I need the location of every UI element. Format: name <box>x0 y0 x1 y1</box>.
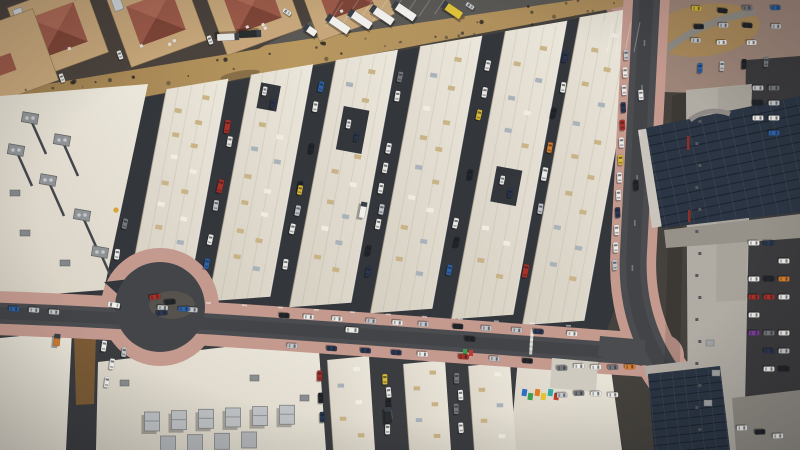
skylight <box>414 386 421 390</box>
car-windshield <box>756 241 758 244</box>
car-windshield <box>185 307 187 310</box>
dealer-lot-car <box>777 365 789 371</box>
ac-unit <box>704 400 712 406</box>
car-windshield <box>354 328 356 332</box>
car-windshield <box>723 9 725 12</box>
debris <box>340 52 342 54</box>
debris <box>82 86 84 88</box>
dealer-lot-car <box>762 365 774 371</box>
car-windshield <box>756 295 758 298</box>
plaza-car <box>741 21 753 28</box>
bottom-alley-car <box>457 390 464 402</box>
car-rear-window <box>368 319 370 322</box>
car-body <box>769 116 780 121</box>
bottom-alley-car <box>385 387 392 399</box>
car-windshield <box>700 25 702 28</box>
car-windshield <box>786 331 788 334</box>
car-body <box>638 90 644 101</box>
rooftop-unit <box>695 142 698 145</box>
car-windshield <box>573 332 575 336</box>
car-rear-window <box>592 392 594 395</box>
car-body <box>764 277 775 282</box>
bottom-left-roof <box>0 331 72 450</box>
car-windshield <box>748 6 750 9</box>
car-rear-window <box>459 430 463 432</box>
skylight <box>481 419 488 423</box>
car-windshield <box>459 325 461 329</box>
island-car-blue <box>177 305 190 312</box>
dealer-lot-car <box>767 114 779 120</box>
car-rear-window <box>558 366 560 369</box>
car-rear-window <box>609 366 611 369</box>
car-rear-window <box>622 109 625 111</box>
car-rear-window <box>30 308 32 311</box>
dealer-lot-car <box>777 293 789 299</box>
car-body <box>719 23 729 28</box>
car-body <box>574 364 585 369</box>
car-body <box>574 391 585 396</box>
car-windshield <box>386 426 389 428</box>
car-rear-window <box>770 101 772 104</box>
island-car <box>163 298 176 305</box>
debris <box>574 15 577 18</box>
car-rear-window <box>383 381 386 383</box>
car-rear-window <box>618 179 621 181</box>
aerial-scene <box>0 0 800 450</box>
car-rear-window <box>466 337 468 341</box>
roadside-car <box>325 344 337 351</box>
car-body <box>386 387 392 398</box>
car-body <box>613 242 619 253</box>
roadside-car <box>391 319 403 326</box>
island-car <box>155 309 168 316</box>
car-windshield <box>761 430 763 433</box>
rooftop-unit <box>695 186 698 189</box>
roof-vent <box>120 380 129 386</box>
driving-car <box>463 335 475 342</box>
car-windshield <box>720 63 723 65</box>
rooftop-unit <box>695 230 698 233</box>
rooftop-equipment <box>113 207 118 212</box>
junction-lot-car <box>555 391 567 398</box>
car-windshield <box>777 25 779 28</box>
tarp <box>521 389 527 397</box>
car-windshield <box>399 321 401 325</box>
car-body <box>164 299 175 305</box>
roadside-car <box>390 349 402 356</box>
car-rear-window <box>624 74 627 76</box>
roof-vent <box>10 190 20 196</box>
car-rear-window <box>289 344 291 347</box>
car-rear-window <box>744 6 746 9</box>
car-rear-window <box>626 365 628 368</box>
debris <box>461 15 465 19</box>
car-body <box>620 120 626 131</box>
debris <box>435 36 437 38</box>
car-rear-window <box>166 300 168 304</box>
dealer-lot-car <box>762 275 774 281</box>
ac-unit <box>706 340 714 346</box>
car-windshield <box>622 87 626 89</box>
car-body <box>453 324 464 330</box>
dark-trailer <box>237 28 262 38</box>
dealer-lot-car <box>753 428 765 435</box>
roadside-car <box>510 326 522 333</box>
rooftop-unit <box>698 296 701 299</box>
car-windshield <box>293 344 295 348</box>
car-body <box>533 329 544 335</box>
debris <box>108 78 112 82</box>
junction-lot-car <box>589 390 601 397</box>
car-body <box>458 354 469 360</box>
bottom-alley-car <box>457 422 464 434</box>
plaza-car <box>741 4 752 10</box>
car-windshield <box>786 295 788 298</box>
right-road-parked-car <box>617 155 624 167</box>
debris <box>51 87 54 90</box>
car-windshield <box>529 359 531 363</box>
bottom-alley-truck <box>382 407 392 426</box>
car-body <box>769 101 780 106</box>
car-body <box>771 24 781 29</box>
roof-vent <box>20 230 30 236</box>
debris <box>25 89 27 91</box>
car-windshield <box>454 406 457 408</box>
car-windshield <box>333 347 335 351</box>
car-windshield <box>194 308 196 312</box>
rooftop-unit <box>698 384 701 387</box>
car-rear-window <box>780 295 782 298</box>
car-body <box>317 370 322 381</box>
car-body <box>326 346 337 352</box>
car-windshield <box>171 300 173 304</box>
dealer-lot-car <box>747 329 759 335</box>
car-body <box>417 351 428 357</box>
debris <box>315 46 318 49</box>
roadside-car <box>278 311 290 318</box>
tarp <box>547 389 553 397</box>
car-windshield <box>742 61 745 63</box>
car-windshield <box>465 355 467 359</box>
car-body <box>764 295 775 300</box>
car-rear-window <box>634 187 637 189</box>
car-rear-window <box>770 86 772 89</box>
car-windshield <box>777 6 779 9</box>
car-body <box>742 5 752 10</box>
debris <box>399 41 401 43</box>
car-rear-window <box>575 365 577 368</box>
debris <box>166 81 170 85</box>
car-windshield <box>617 192 621 194</box>
car-windshield <box>372 319 374 323</box>
car-body <box>741 59 746 69</box>
car-body <box>465 336 476 342</box>
car-rear-window <box>592 366 594 369</box>
car-windshield <box>563 366 565 369</box>
car-windshield <box>771 367 773 370</box>
debris <box>324 57 328 61</box>
rooftop-unit <box>695 274 698 277</box>
debris <box>613 2 615 4</box>
car-rear-window <box>770 116 772 119</box>
car-rear-window <box>748 41 750 44</box>
car-body <box>303 314 314 320</box>
car-rear-window <box>754 86 756 89</box>
right-road-parked-car <box>621 67 628 79</box>
bottom-right-building <box>732 390 800 450</box>
car-rear-window <box>180 307 182 310</box>
skylight <box>434 434 441 438</box>
car-windshield <box>623 69 627 71</box>
car-body <box>623 50 629 61</box>
car-rear-window <box>10 307 12 310</box>
roadside-car <box>47 308 59 315</box>
car-body <box>773 433 784 438</box>
warehouse-strips-bottom <box>327 356 516 450</box>
car-body <box>763 57 768 67</box>
car-windshield <box>387 389 391 391</box>
car-windshield <box>540 330 542 334</box>
car-windshield <box>319 395 322 397</box>
car-rear-window <box>460 355 462 358</box>
curb-dash <box>422 316 427 318</box>
car-rear-window <box>765 367 767 370</box>
car-body <box>454 404 459 415</box>
skylight <box>354 367 361 371</box>
junction-lot-car <box>623 363 635 370</box>
car-rear-window <box>347 328 349 332</box>
red-awning <box>687 136 690 150</box>
car-rear-window <box>615 232 618 234</box>
curb-dash <box>350 311 355 313</box>
car-rear-window <box>454 325 456 328</box>
car-body <box>769 86 780 91</box>
car-body <box>489 356 500 362</box>
car-body <box>360 348 371 354</box>
junction-lot-car <box>606 391 618 398</box>
skylight <box>340 417 347 421</box>
car-windshield <box>634 182 638 184</box>
car-rear-window <box>362 349 364 352</box>
car-body <box>692 6 702 11</box>
dealer-lot-car <box>751 84 763 90</box>
car-windshield <box>779 434 781 437</box>
car-body <box>622 85 628 96</box>
right-road-parked-car <box>612 242 619 254</box>
car-rear-window <box>318 378 321 380</box>
car-windshield <box>756 313 758 316</box>
dealer-lot-car <box>771 432 783 439</box>
car-windshield <box>786 259 788 262</box>
dealer-lot-car <box>747 275 759 281</box>
car-rear-window <box>750 313 752 316</box>
car-body <box>458 390 464 401</box>
car-rear-window <box>770 131 772 134</box>
debris <box>552 15 556 19</box>
car-body <box>779 295 790 300</box>
car-windshield <box>459 424 463 426</box>
car-body <box>779 259 790 264</box>
car-rear-window <box>744 24 746 27</box>
right-road-parked-car <box>619 102 626 114</box>
hvac-fan <box>17 148 21 152</box>
truck-cab <box>256 30 261 37</box>
junction-lot-car <box>555 364 567 371</box>
warehouse-strip-bottom <box>327 356 375 450</box>
car-body <box>764 331 775 336</box>
dealer-lot-car <box>767 84 779 90</box>
car-rear-window <box>491 357 493 360</box>
hvac-fan <box>77 213 81 217</box>
car-rear-window <box>558 394 560 397</box>
right-road-parked-car <box>620 85 627 97</box>
car-windshield <box>771 349 773 352</box>
junction-lot-car <box>572 363 584 370</box>
car-windshield <box>621 104 625 106</box>
car-rear-window <box>319 400 322 402</box>
car-rear-window <box>513 328 515 331</box>
car-rear-window <box>609 393 611 396</box>
car-windshield <box>338 317 340 321</box>
hvac-fan <box>83 213 87 217</box>
dealer-lot-car <box>735 424 747 431</box>
car-windshield <box>367 349 369 353</box>
car-rear-window <box>764 64 767 66</box>
car-body <box>616 190 622 201</box>
dealer-lot-car <box>777 257 789 263</box>
car-rear-window <box>780 367 782 370</box>
car-body <box>749 331 760 336</box>
plaza-car <box>692 23 703 29</box>
tarp <box>469 350 473 356</box>
car-windshield <box>786 367 788 370</box>
dealer-lot-car <box>777 329 789 335</box>
rooftop-unit <box>698 340 701 343</box>
car-rear-window <box>614 249 617 251</box>
driving-van <box>344 326 359 334</box>
car-body <box>9 306 20 312</box>
curb-dash <box>206 302 211 304</box>
car-windshield <box>725 24 727 27</box>
roadside-car <box>480 324 492 331</box>
car-rear-window <box>765 349 767 352</box>
lane-dash <box>644 40 646 46</box>
car-body <box>779 277 790 282</box>
car-rear-window <box>387 394 391 396</box>
car-windshield <box>698 65 701 67</box>
car-windshield <box>614 393 616 396</box>
car-windshield <box>620 139 624 141</box>
debris <box>233 68 235 70</box>
roadside-car <box>365 317 377 324</box>
car-windshield <box>597 365 599 368</box>
dealer-lot-car <box>747 311 759 317</box>
hvac-fan <box>63 138 67 142</box>
car-body <box>612 260 618 271</box>
hvac-fan <box>49 178 53 182</box>
car-body <box>619 137 625 148</box>
dealer-lot-car <box>777 347 789 353</box>
debris <box>479 20 483 24</box>
car-rear-window <box>719 9 721 12</box>
dealer-lot-car <box>751 114 763 120</box>
junction-lot-car <box>589 363 601 370</box>
skylight <box>430 371 437 375</box>
plaza-car <box>745 39 756 45</box>
car-rear-window <box>575 392 577 395</box>
car-windshield <box>318 372 321 374</box>
car-rear-window <box>738 426 740 429</box>
hvac-fan <box>57 138 61 142</box>
car-body <box>567 331 578 337</box>
curb-dash <box>530 323 535 325</box>
debris <box>476 21 478 23</box>
car-rear-window <box>773 25 775 28</box>
car-rear-window <box>765 277 767 280</box>
car-rear-window <box>780 349 782 352</box>
car-windshield <box>776 101 778 104</box>
car-rear-window <box>623 92 626 94</box>
car-windshield <box>697 39 699 42</box>
roadside-car <box>521 357 533 364</box>
car-body <box>764 349 775 354</box>
debris <box>457 34 460 37</box>
car-body <box>737 425 748 430</box>
skylight <box>416 418 423 422</box>
car-windshield <box>310 315 312 319</box>
car-rear-window <box>328 347 330 350</box>
car-windshield <box>55 310 57 314</box>
car-body <box>557 393 568 398</box>
car-windshield <box>753 41 755 44</box>
dealer-lot-car <box>762 347 774 353</box>
car-rear-window <box>616 214 619 216</box>
dealer-lot-car <box>762 293 774 299</box>
car-rear-window <box>621 127 624 129</box>
car-body <box>418 321 429 327</box>
lane-dash <box>639 130 641 136</box>
car-body <box>742 23 752 29</box>
car-windshield <box>619 157 623 159</box>
car-windshield <box>397 351 399 355</box>
car-windshield <box>748 24 750 27</box>
dealer-lot-car <box>762 329 774 335</box>
car-body <box>618 155 624 166</box>
debris <box>586 10 589 13</box>
car-windshield <box>488 327 490 331</box>
car-body <box>382 374 387 385</box>
car-body <box>749 313 760 318</box>
car-rear-window <box>693 39 695 42</box>
debris <box>527 5 530 8</box>
car-body <box>385 424 390 435</box>
debris <box>531 23 534 26</box>
roadside-car <box>457 353 469 360</box>
car-rear-window <box>718 41 720 44</box>
curb-dash <box>458 318 463 320</box>
bottom-alley-car <box>453 373 459 385</box>
roadside-car <box>302 313 314 320</box>
car-rear-window <box>756 430 758 433</box>
junction-lot-car <box>572 390 584 397</box>
car-rear-window <box>695 25 697 28</box>
curb-dash <box>314 309 319 311</box>
car-body <box>615 207 621 218</box>
crosswalk-dash <box>529 347 532 354</box>
car-windshield <box>614 366 616 369</box>
curb-dash <box>494 320 499 322</box>
car-body <box>749 277 760 282</box>
